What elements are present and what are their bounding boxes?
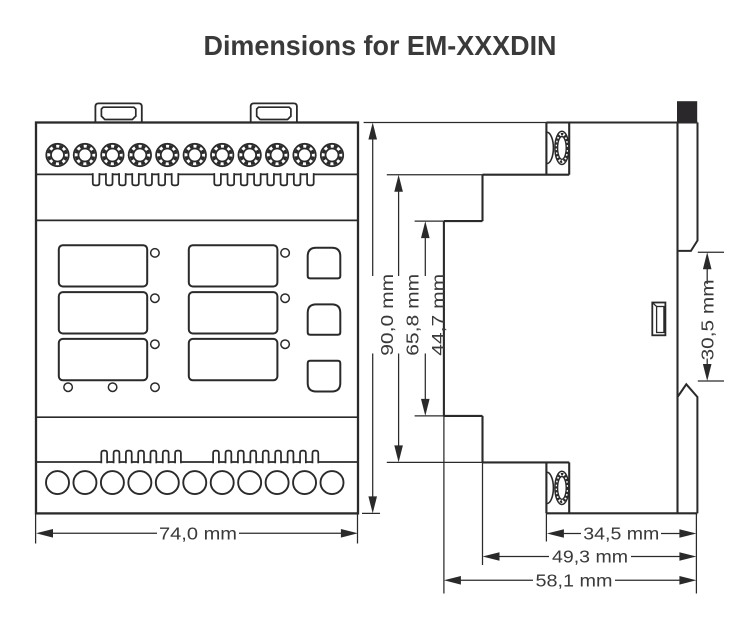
svg-text:30,5 mm: 30,5 mm: [697, 279, 717, 360]
svg-text:74,0 mm: 74,0 mm: [159, 523, 237, 543]
svg-text:65,8 mm: 65,8 mm: [402, 274, 422, 356]
svg-text:34,5 mm: 34,5 mm: [583, 524, 659, 544]
svg-text:44,7 mm: 44,7 mm: [428, 274, 448, 356]
svg-text:Dimensions for EM-XXXDIN: Dimensions for EM-XXXDIN: [204, 30, 557, 61]
svg-text:49,3 mm: 49,3 mm: [552, 547, 628, 567]
svg-text:90,0 mm: 90,0 mm: [377, 274, 397, 356]
svg-text:58,1 mm: 58,1 mm: [536, 570, 613, 590]
